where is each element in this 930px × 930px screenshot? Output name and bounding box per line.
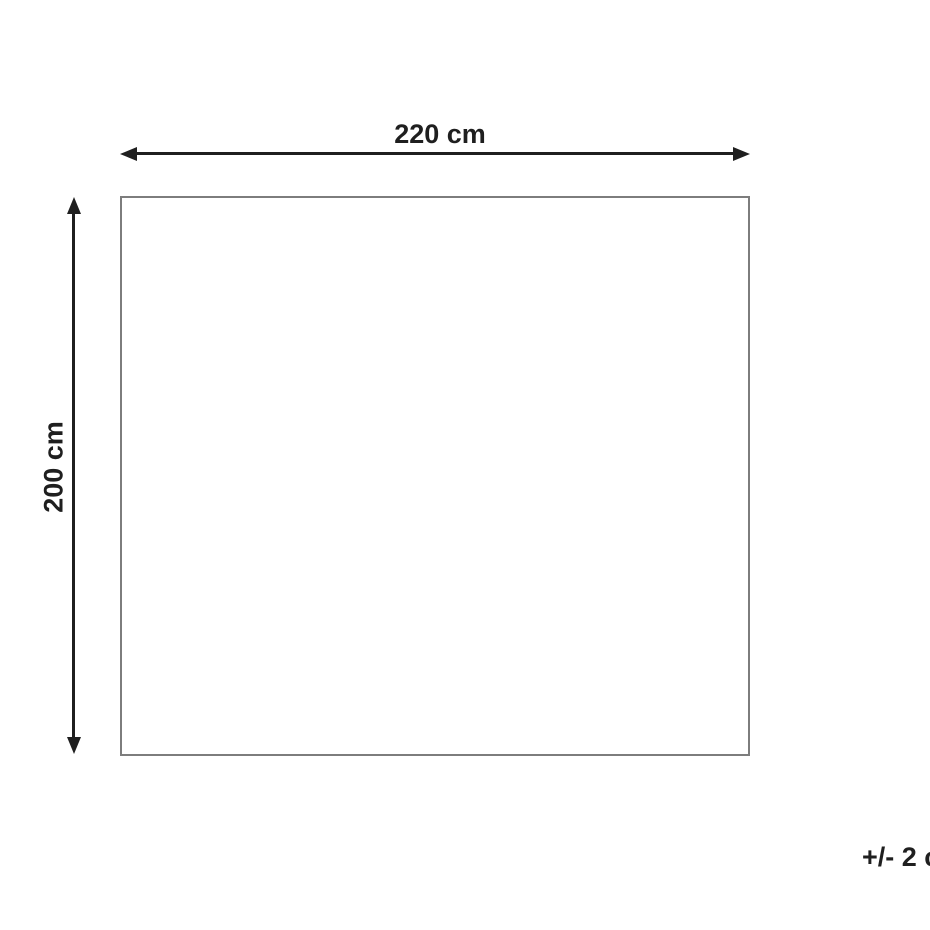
arrow-line <box>72 210 75 741</box>
width-dimension-arrow <box>120 151 750 157</box>
product-outline-rectangle <box>120 196 750 756</box>
dimension-diagram: 220 cm 200 cm +/- 2 cm <box>0 0 930 930</box>
arrow-down-icon <box>67 737 81 754</box>
width-dimension-label: 220 cm <box>120 120 760 148</box>
arrow-right-icon <box>733 147 750 161</box>
arrow-line <box>133 152 737 155</box>
height-dimension-arrow <box>71 197 77 754</box>
height-dimension-label: 200 cm <box>39 421 70 513</box>
tolerance-label: +/- 2 cm <box>862 842 930 873</box>
